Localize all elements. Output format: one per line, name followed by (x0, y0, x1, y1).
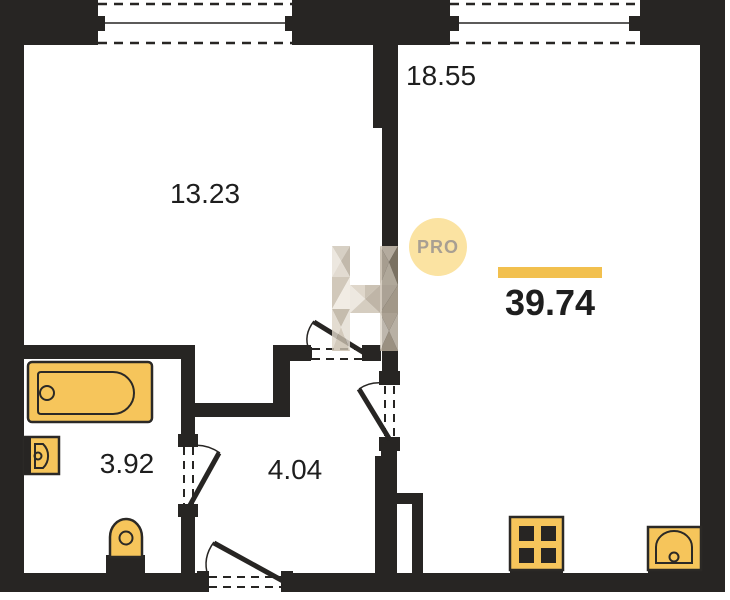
wall-left (0, 0, 24, 592)
floor-plan: 13.23 18.55 3.92 4.04 PRO 39.74 (0, 0, 730, 600)
room-area-label-hallway: 4.04 (245, 454, 345, 486)
developer-logo-icon (332, 246, 398, 352)
pro-badge: PRO (409, 218, 467, 276)
room-area-label-top-left: 13.23 (155, 178, 255, 210)
wall-divider-lower (375, 456, 397, 592)
room-area-label-bathroom: 3.92 (77, 448, 177, 480)
wall-recess-bottom (195, 403, 290, 417)
toilet-icon (106, 519, 145, 577)
washbasin-icon (24, 437, 59, 474)
kitchen-sink-icon (648, 527, 701, 577)
wall-top-right (640, 0, 725, 45)
door-room-top-right (359, 371, 400, 451)
window-left (93, 4, 297, 43)
wall-top-middle (292, 0, 450, 45)
stove-icon (510, 517, 563, 577)
wall-divider-upper (373, 45, 398, 128)
wall-right (700, 45, 725, 592)
bathtub-icon (28, 362, 152, 422)
wall-bathroom-right-lower (181, 513, 195, 573)
window-jamb-icon (629, 16, 641, 31)
accent-divider-bar (498, 267, 602, 278)
window-right (447, 4, 641, 43)
total-area-label: 39.74 (487, 282, 613, 324)
window-jamb-icon (285, 16, 297, 31)
wall-niche-arm (395, 493, 423, 504)
door-bathroom (178, 434, 220, 517)
window-jamb-icon (447, 16, 459, 31)
wall-niche-side (412, 504, 423, 574)
window-jamb-icon (93, 16, 105, 31)
room-area-label-top-right: 18.55 (406, 60, 506, 92)
wall-bathroom-right-upper (181, 345, 195, 440)
wall-bathroom-top (24, 345, 195, 359)
door-entrance (197, 542, 293, 592)
